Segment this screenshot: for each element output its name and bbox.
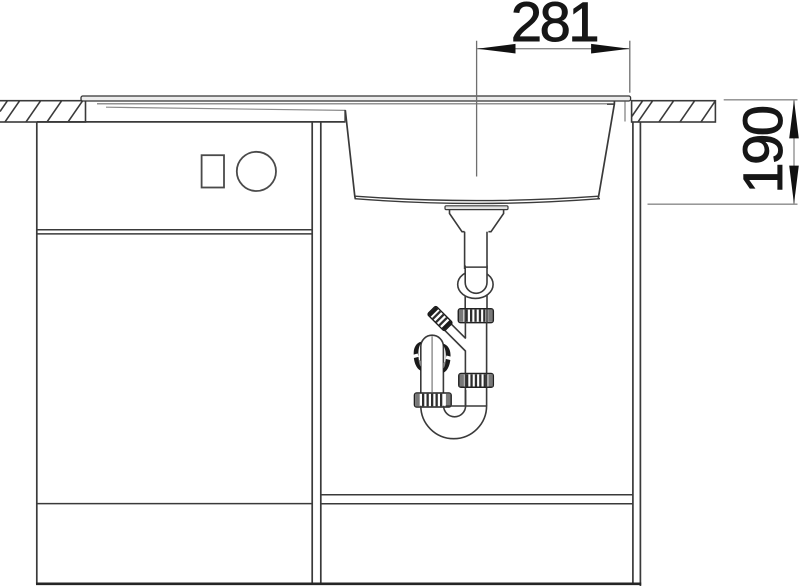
svg-text:190: 190 (731, 107, 794, 193)
svg-text:281: 281 (511, 0, 597, 53)
